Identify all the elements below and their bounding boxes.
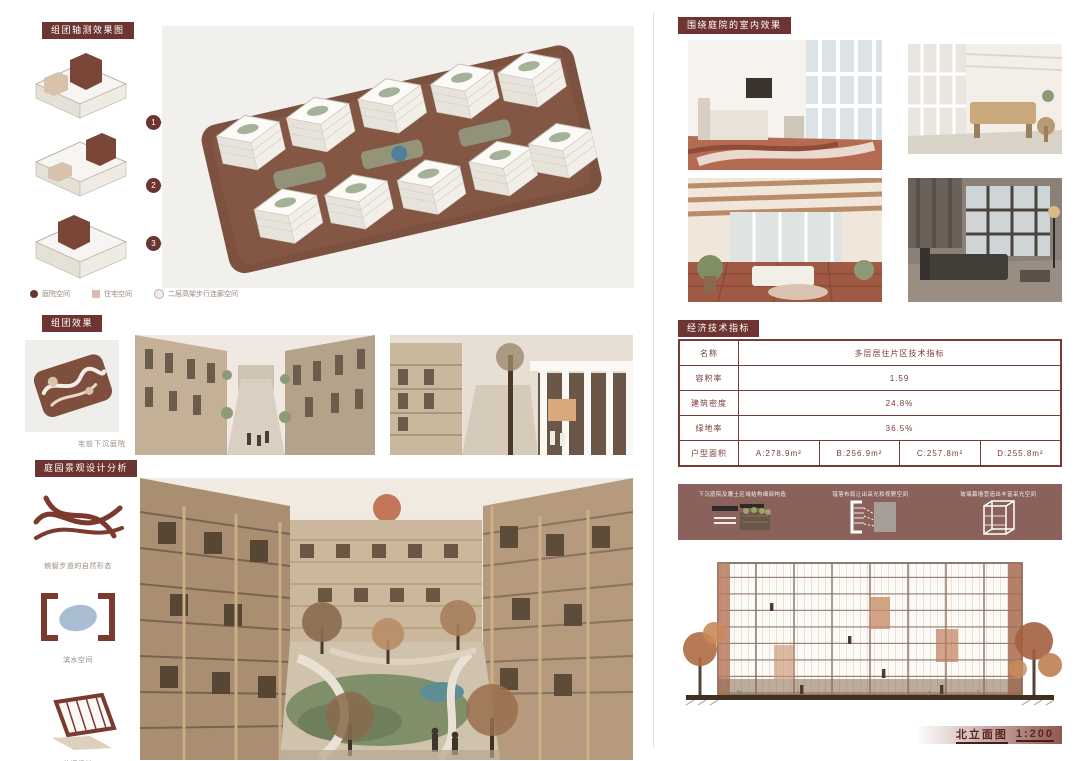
banner-caption: 玻璃幕墙营造出丰富采光空间 (941, 489, 1055, 497)
interior-render-2-art (908, 44, 1062, 154)
axon-marker-3: 3 (146, 236, 161, 251)
courtyard-render-1-art (135, 335, 375, 455)
site-axonometric-view (162, 26, 634, 288)
interior-render-1 (688, 40, 882, 170)
effect-section-tag: 组团效果 (42, 315, 102, 332)
indicators-table: 名称 多层居住片区技术指标 容积率 1.59 建筑密度 24.8% 绿地率 36… (678, 339, 1062, 467)
legend-square-swatch (92, 290, 100, 298)
row-label: 容积率 (679, 366, 739, 391)
table-row: 建筑密度 24.8% (679, 391, 1061, 416)
marker-number: 1 (151, 118, 155, 127)
indicators-section-tag: 经济技术指标 (678, 320, 759, 337)
banner-item-3: 玻璃幕墙营造出丰富采光空间 (935, 489, 1062, 541)
courtyard-aerial-art (140, 478, 633, 760)
detail-banner: 下沉庭院及覆土区域结构细部构造 错落布局让出采光和视野空间 玻璃幕墙营造出丰富采… (678, 484, 1062, 540)
plan-thumbnail-drawing (25, 340, 119, 432)
axon-marker-1: 1 (146, 115, 161, 130)
landscape-item-label: 滨水空间 (28, 655, 128, 665)
legend-circle-swatch (154, 289, 164, 299)
interior-render-4-art (908, 178, 1062, 302)
soil-section-icon (706, 498, 778, 536)
legend-label: 二层高架步行连廊空间 (168, 289, 238, 299)
interior-section-tag: 围绕庭院的室内效果 (678, 17, 791, 34)
interior-render-3 (688, 178, 882, 302)
legend-item-1: 庭院空间 (30, 289, 70, 299)
landscape-item-label: 蜿蜒步道的自然形态 (28, 561, 128, 571)
elevation-scale: 1:200 (1016, 728, 1054, 742)
row-value: D:255.8m² (980, 441, 1061, 467)
north-elevation-drawing (678, 545, 1062, 730)
legend-label: 庭院空间 (42, 289, 70, 299)
center-divider (653, 12, 654, 748)
courtyard-render-2 (390, 335, 633, 455)
interior-render-2 (908, 44, 1062, 154)
presentation-board: 组团轴测效果图 (0, 0, 1080, 761)
table-row: 容积率 1.59 (679, 366, 1061, 391)
winding-paths-icon (32, 492, 124, 552)
marker-number: 3 (151, 239, 155, 248)
landscape-item-ground: 休闲场地 (28, 686, 128, 761)
exploded-piece-diagrams (24, 52, 136, 287)
legend-item-2: 住宅空间 (92, 289, 132, 299)
elevation-title: 北立面图 (956, 726, 1008, 744)
legend-item-3: 二层高架步行连廊空间 (154, 289, 238, 299)
row-label: 绿地率 (679, 416, 739, 441)
legend-label: 住宅空间 (104, 289, 132, 299)
row-value: A:278.9m² (739, 441, 820, 467)
table-row: 户型面积 A:278.9m² B:256.9m² C:257.8m² D:255… (679, 441, 1061, 467)
glass-box-icon (962, 498, 1034, 536)
courtyard-render-1 (135, 335, 375, 455)
elevation-art (678, 545, 1062, 730)
courtyard-render-2-art (390, 335, 633, 455)
banner-caption: 下沉庭院及覆土区域结构细部构造 (685, 489, 799, 497)
row-value: 36.5% (739, 416, 1062, 441)
axonometric-drawing (162, 26, 634, 288)
daylight-diagram-icon (834, 498, 906, 536)
landscape-item-water: 滨水空间 (28, 588, 128, 665)
axon-legend: 庭院空间 住宅空间 二层高架步行连廊空间 (30, 289, 238, 299)
row-label: 建筑密度 (679, 391, 739, 416)
row-value: B:256.9m² (819, 441, 900, 467)
landscape-section-tag: 庭园景观设计分析 (35, 460, 137, 477)
row-value: 多层居住片区技术指标 (739, 340, 1062, 366)
sunken-courtyard-plan (25, 340, 119, 432)
water-space-icon (32, 588, 124, 646)
plan-caption: 宅前下沉庭院 (78, 439, 126, 449)
row-label: 户型面积 (679, 441, 739, 467)
hatched-deck-icon (32, 686, 124, 750)
exploded-axon-column (24, 52, 136, 287)
marker-number: 2 (151, 181, 155, 190)
banner-item-1: 下沉庭院及覆土区域结构细部构造 (679, 489, 806, 541)
courtyard-aerial-render (140, 478, 633, 760)
table-row: 绿地率 36.5% (679, 416, 1061, 441)
axon-marker-2: 2 (146, 178, 161, 193)
legend-dot-swatch (30, 290, 38, 298)
banner-caption: 错落布局让出采光和视野空间 (813, 489, 927, 497)
row-value: C:257.8m² (900, 441, 981, 467)
interior-render-1-art (688, 40, 882, 170)
interior-render-3-art (688, 178, 882, 302)
banner-item-2: 错落布局让出采光和视野空间 (807, 489, 934, 541)
interior-render-4 (908, 178, 1062, 302)
row-value: 24.8% (739, 391, 1062, 416)
axon-section-tag: 组团轴测效果图 (42, 22, 134, 39)
row-value: 1.59 (739, 366, 1062, 391)
table-row: 名称 多层居住片区技术指标 (679, 340, 1061, 366)
landscape-item-paths: 蜿蜒步道的自然形态 (28, 492, 128, 571)
row-label: 名称 (679, 340, 739, 366)
elevation-caption-bar: 北立面图 1:200 (916, 726, 1062, 744)
